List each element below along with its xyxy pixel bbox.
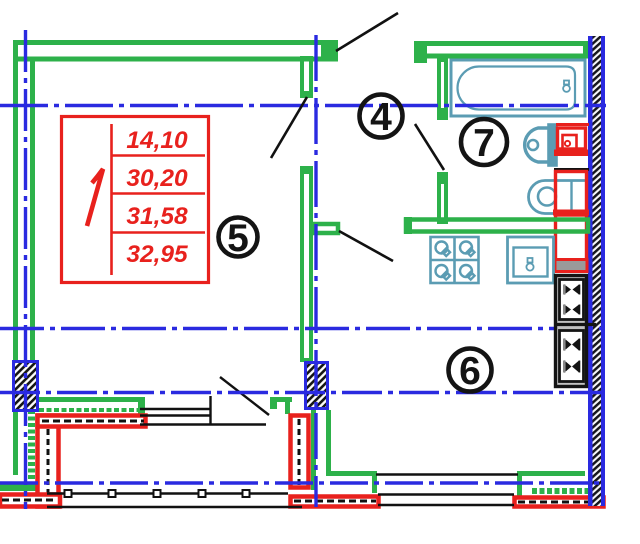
- svg-text:32,95: 32,95: [126, 241, 188, 268]
- svg-text:4: 4: [370, 96, 392, 139]
- svg-text:7: 7: [473, 122, 495, 165]
- svg-text:31,58: 31,58: [126, 203, 188, 230]
- svg-text:5: 5: [227, 217, 249, 260]
- svg-text:30,20: 30,20: [126, 165, 188, 192]
- svg-text:14,10: 14,10: [126, 127, 188, 154]
- svg-text:6: 6: [459, 350, 481, 393]
